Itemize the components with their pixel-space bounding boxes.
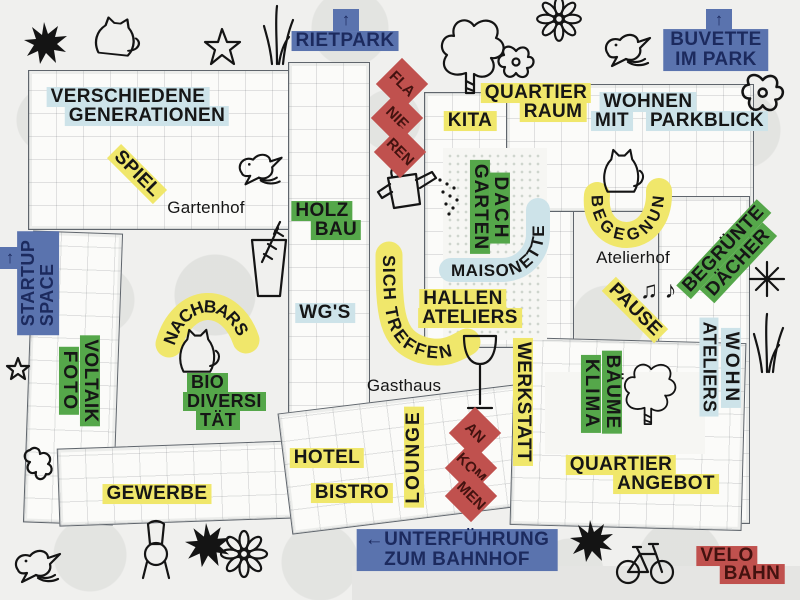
label-dachgarten: DACH [490, 173, 510, 244]
label-verschiedene: VERSCHIEDENE [47, 87, 210, 107]
label-quartier-angebot: ANGEBOT [613, 474, 719, 494]
label-foto-voltaik: VOLTAIK [80, 335, 100, 426]
label-kita: KITA [444, 111, 497, 131]
label-wohn-ateliers: WOHN [721, 328, 741, 408]
up-arrow-icon: ↑ [715, 10, 724, 30]
label-wohnen: WOHNEN [600, 92, 697, 112]
label-dachgarten: GARTEN [470, 160, 490, 254]
label-hallen-ateliers: ATELIERS [418, 308, 522, 328]
sign-startup-space: STARTUP SPACE [17, 231, 59, 335]
label-klima-baeume: KLIMA [581, 355, 601, 433]
label-werkstatt: WERKSTATT [513, 338, 533, 466]
up-arrow-icon: ↑ [6, 248, 15, 268]
label-holzbau: BAU [311, 220, 361, 240]
label-gasthaus: Gasthaus [363, 377, 445, 395]
sign-rietpark: RIETPARK [292, 31, 399, 51]
building-outline [288, 62, 370, 430]
label-hallen-ateliers: HALLEN [419, 289, 506, 309]
label-atelierhof: Atelierhof [592, 249, 674, 267]
label-lounge: LOUNGE [404, 406, 424, 507]
sign-unterfuehrung: ←UNTERFÜHRUNG ZUM BAHNHOF [357, 529, 558, 571]
label-holzbau: HOLZ [291, 201, 352, 221]
label-quartier-raum: QUARTIER [481, 83, 591, 103]
label-wohn-ateliers: ATELIERS [700, 318, 719, 417]
label-quartier-angebot: QUARTIER [566, 455, 676, 475]
rietpark-arrow-tab: ↑ [333, 9, 359, 31]
label-quartier-raum: RAUM [520, 102, 587, 122]
sign-velobahn: BAHN [720, 564, 785, 584]
label-wgs: WG'S [295, 303, 355, 323]
label-gewerbe: GEWERBE [103, 484, 212, 504]
label-biodiversitaet: BIO DIVERSI TÄT [183, 373, 266, 430]
label-foto-voltaik: FOTO [59, 347, 79, 415]
site-plan-map: NACHBARSCHAFT SICH TREFFEN BEGEGNUNG MAI… [0, 0, 800, 600]
label-klima-baeume: BÄUME [602, 351, 622, 434]
label-gartenhof: Gartenhof [163, 199, 248, 217]
buvette-arrow-tab: ↑ [706, 9, 732, 31]
courtyard [545, 372, 705, 454]
up-arrow-icon: ↑ [342, 10, 351, 30]
label-hotel: HOTEL [290, 448, 364, 468]
sign-buvette-im-park: BUVETTE IM PARK [663, 29, 768, 71]
label-bistro: BISTRO [311, 483, 393, 503]
label-mit: MIT [591, 111, 633, 131]
label-parkblick: PARKBLICK [646, 111, 768, 131]
label-generationen: GENERATIONEN [65, 106, 229, 126]
